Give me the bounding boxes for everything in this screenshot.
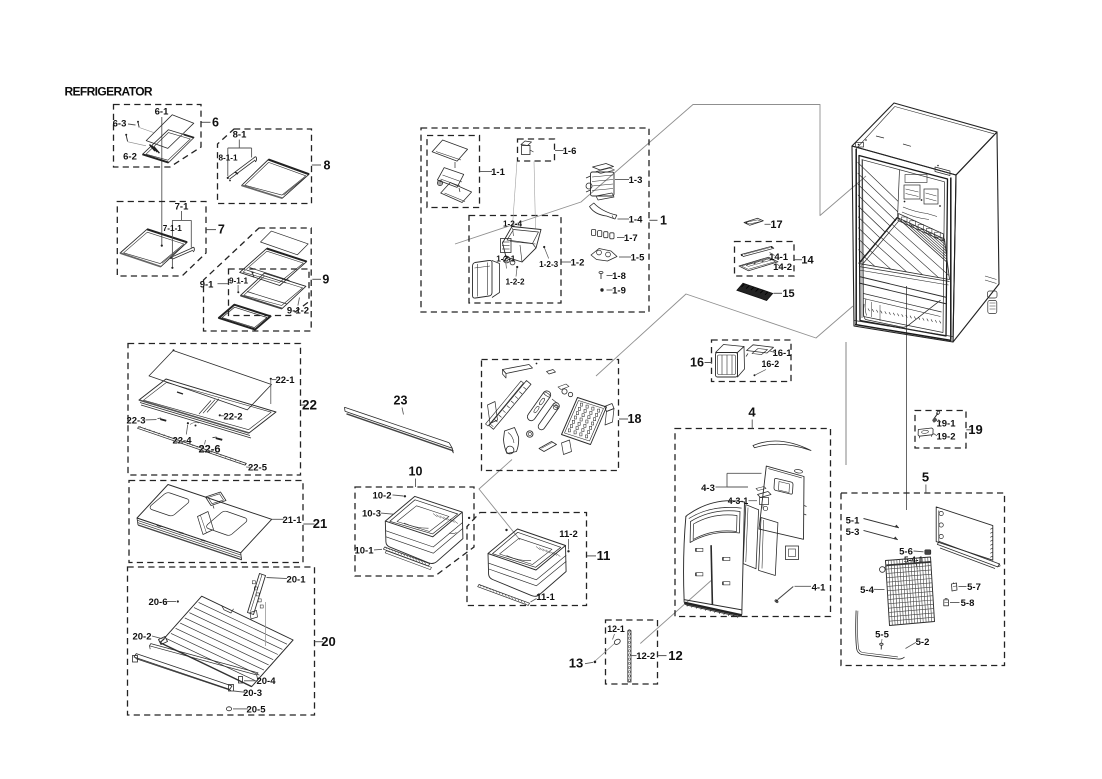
- svg-text:5-2: 5-2: [916, 637, 930, 648]
- svg-text:16-1: 16-1: [772, 348, 792, 359]
- svg-text:18: 18: [628, 412, 642, 426]
- svg-text:17: 17: [770, 219, 782, 231]
- svg-text:12-1: 12-1: [607, 624, 625, 634]
- svg-text:1-2-4: 1-2-4: [503, 220, 523, 229]
- svg-text:22-3: 22-3: [126, 416, 145, 427]
- svg-text:4-1: 4-1: [812, 583, 826, 594]
- svg-text:16: 16: [690, 356, 704, 370]
- svg-text:16-2: 16-2: [761, 359, 779, 369]
- svg-text:19-2: 19-2: [936, 432, 955, 443]
- svg-text:9: 9: [322, 273, 329, 287]
- svg-text:1-7: 1-7: [624, 233, 638, 244]
- svg-text:5-8: 5-8: [961, 598, 975, 609]
- svg-text:20-6: 20-6: [148, 597, 167, 608]
- svg-text:20: 20: [321, 634, 335, 649]
- svg-text:14-2: 14-2: [773, 262, 792, 273]
- svg-text:8: 8: [324, 159, 331, 173]
- svg-text:5-1: 5-1: [846, 516, 860, 527]
- svg-text:20-1: 20-1: [286, 575, 306, 586]
- svg-text:1-4: 1-4: [629, 215, 643, 226]
- svg-text:12: 12: [668, 648, 682, 663]
- svg-text:20-3: 20-3: [243, 688, 262, 699]
- svg-text:9-1-2: 9-1-2: [287, 306, 309, 317]
- svg-text:10-1: 10-1: [354, 546, 374, 557]
- svg-text:1-5: 1-5: [631, 253, 645, 264]
- svg-text:7: 7: [218, 223, 225, 237]
- svg-text:6-3: 6-3: [113, 119, 127, 130]
- svg-text:5-5: 5-5: [875, 630, 889, 641]
- svg-text:1-1: 1-1: [491, 167, 505, 178]
- svg-text:22-2: 22-2: [223, 412, 242, 423]
- svg-text:5-7: 5-7: [967, 582, 981, 593]
- svg-text:9-1-1: 9-1-1: [229, 277, 249, 286]
- svg-text:1: 1: [660, 214, 667, 228]
- svg-text:4-3: 4-3: [701, 483, 715, 494]
- svg-text:10: 10: [409, 465, 423, 479]
- svg-text:10-2: 10-2: [372, 490, 391, 501]
- svg-text:7-1-1: 7-1-1: [163, 224, 183, 233]
- svg-text:22-5: 22-5: [248, 463, 268, 474]
- svg-text:8-1-1: 8-1-1: [218, 154, 238, 163]
- svg-text:1-2-2: 1-2-2: [505, 278, 525, 287]
- svg-text:14: 14: [801, 255, 814, 267]
- svg-text:5: 5: [922, 470, 929, 485]
- svg-text:1-3: 1-3: [629, 175, 643, 186]
- svg-text:6: 6: [212, 116, 219, 130]
- svg-text:20-5: 20-5: [246, 705, 266, 716]
- svg-text:1-9: 1-9: [612, 286, 626, 297]
- svg-text:6-2: 6-2: [123, 152, 137, 163]
- svg-text:4: 4: [748, 405, 756, 420]
- svg-text:1-6: 1-6: [563, 146, 577, 157]
- svg-text:1-2-3: 1-2-3: [539, 260, 559, 269]
- svg-text:5-4: 5-4: [860, 585, 874, 596]
- svg-text:6-1: 6-1: [155, 107, 169, 118]
- svg-text:7-1: 7-1: [175, 202, 189, 213]
- svg-text:11-1: 11-1: [536, 592, 555, 603]
- svg-text:12-2: 12-2: [636, 651, 655, 662]
- svg-text:8-1: 8-1: [233, 130, 247, 141]
- svg-text:21: 21: [313, 516, 327, 531]
- svg-text:1-8: 1-8: [612, 271, 626, 282]
- svg-text:1-2-1: 1-2-1: [496, 255, 516, 264]
- svg-text:20-2: 20-2: [132, 632, 151, 643]
- svg-text:13: 13: [569, 656, 583, 671]
- svg-text:20-4: 20-4: [256, 676, 276, 687]
- svg-text:9-1: 9-1: [200, 280, 214, 291]
- svg-text:1-2: 1-2: [571, 258, 585, 269]
- svg-text:11: 11: [597, 548, 611, 563]
- svg-text:11-2: 11-2: [559, 529, 578, 540]
- svg-text:21-1: 21-1: [282, 515, 302, 526]
- svg-text:23: 23: [394, 394, 408, 408]
- svg-text:5-3: 5-3: [846, 527, 860, 538]
- svg-text:15: 15: [782, 288, 794, 300]
- svg-text:REFRIGERATOR: REFRIGERATOR: [65, 84, 153, 98]
- svg-text:22-1: 22-1: [275, 375, 295, 386]
- svg-text:10-3: 10-3: [362, 508, 381, 519]
